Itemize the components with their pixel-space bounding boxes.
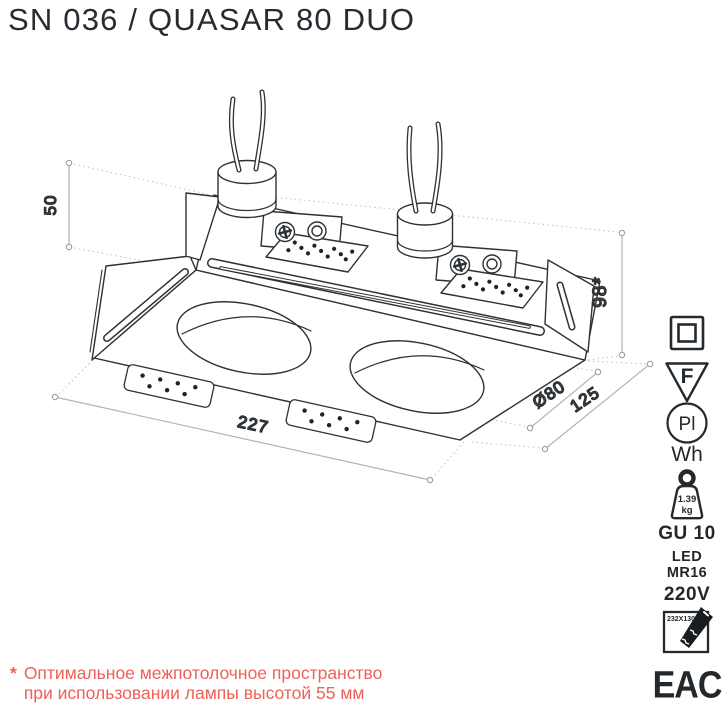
eac-letters: EAC: [648, 664, 726, 708]
dim-label-227: 227: [236, 412, 271, 437]
weight-icon: 1.39 kg: [648, 468, 726, 525]
protection-class-ii-icon: [648, 314, 726, 357]
footnote-line2: при использовании лампы высотой 55 мм: [24, 683, 365, 703]
finish-color-label: Wh: [648, 443, 726, 467]
footnote-line1: Оптимальное межпотолочное пространство: [24, 663, 383, 683]
voltage-label: 220V: [648, 584, 726, 606]
dim-label-98: 98*: [590, 276, 611, 308]
dim-label-125: 125: [567, 383, 604, 416]
socket-label: GU 10: [648, 523, 726, 545]
pl-mark-letters: Pl: [679, 414, 696, 435]
footnote-text: Оптимальное межпотолочное пространство п…: [24, 663, 383, 703]
footnote: * Оптимальное межпотолочное пространство…: [10, 663, 382, 703]
fixture-technical-drawing: 50 98* 227 Ø80 125: [0, 0, 727, 711]
weight-value: 1.39: [678, 494, 697, 505]
lamp-type-line1: LED: [648, 549, 726, 565]
ceiling-cutout-icon: 232X130: [648, 606, 726, 661]
dim-label-50: 50: [41, 195, 60, 216]
spec-sheet: SN 036 / QUASAR 80 DUO: [0, 0, 727, 711]
eac-certification-mark: EAC: [648, 664, 726, 703]
lamp-type-label: LED MR16: [648, 549, 726, 581]
lamp-type-line2: MR16: [648, 565, 726, 581]
f-mark-letter: F: [681, 365, 694, 388]
footnote-asterisk: *: [10, 663, 17, 703]
cutout-size-label: 232X130: [667, 616, 695, 623]
weight-unit: kg: [681, 505, 692, 516]
